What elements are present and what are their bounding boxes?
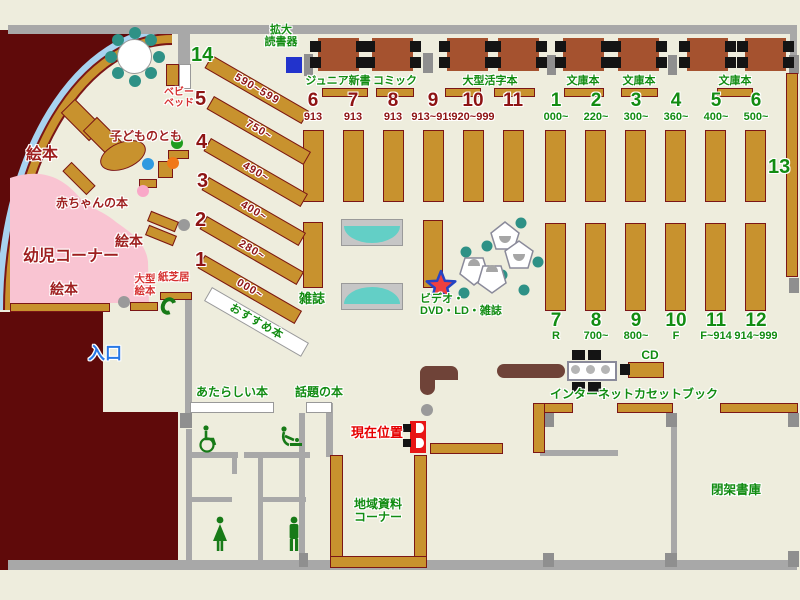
chair: [536, 57, 547, 68]
bookshelf: [166, 64, 179, 86]
chair: [783, 57, 794, 68]
library-floor-map: 590~599750~490~400~280~000~1454321おすすめ本6…: [0, 0, 800, 600]
bookshelf: [705, 130, 726, 202]
label-comic: コミック: [371, 75, 419, 87]
pillar: [789, 278, 799, 293]
bookshelf: [330, 556, 427, 568]
label-bunko-3: 文庫本: [715, 75, 755, 87]
label-zasshi: 雑誌: [299, 292, 325, 306]
bench-lower: [341, 283, 403, 310]
wall: [178, 33, 190, 65]
stack-number: 3: [197, 170, 208, 192]
wall: [540, 450, 618, 456]
chair: [783, 41, 794, 52]
reading-table: [687, 38, 728, 71]
label-entrance: 入口: [88, 345, 122, 364]
marker-square: [403, 424, 411, 432]
pillar: [118, 296, 130, 308]
pillar: [543, 553, 554, 567]
terminal-seat: [571, 365, 580, 374]
bookshelf: [303, 130, 324, 202]
bookshelf: [745, 223, 766, 311]
bookshelf: [585, 130, 606, 202]
counter-bar: [497, 364, 565, 378]
pillar: [545, 413, 554, 427]
bookshelf: [383, 130, 404, 202]
label-cassette: カセットブック: [634, 388, 718, 401]
bookshelf: [303, 222, 323, 288]
label-topic-books: 話題の本: [291, 386, 347, 399]
wall: [185, 296, 192, 414]
chair-dot: [105, 51, 117, 63]
terminal-seat: [586, 365, 595, 374]
pillar: [666, 413, 677, 427]
terminal-seat: [601, 365, 610, 374]
stack-range: 920~999: [439, 111, 507, 123]
pillar: [421, 404, 433, 416]
stool-blue: [142, 158, 154, 170]
chair: [555, 41, 566, 52]
chair: [364, 57, 375, 68]
chair: [620, 364, 630, 375]
chair: [588, 350, 601, 360]
label-ehon-low: 絵本: [50, 282, 78, 297]
chair: [439, 57, 450, 68]
bookshelf: [463, 130, 484, 202]
label-video: ビデオ・ DVD・LD・雑誌: [420, 293, 502, 317]
label-junior-shinsho: ジュニア新書: [302, 75, 374, 87]
label-bunko-2: 文庫本: [619, 75, 659, 87]
pillar: [668, 55, 677, 75]
bookshelf: [585, 223, 606, 311]
chair: [490, 57, 501, 68]
bookshelf: [705, 223, 726, 311]
chair: [656, 57, 667, 68]
chair: [364, 41, 375, 52]
bookshelf: [625, 130, 646, 202]
pillar: [665, 553, 677, 567]
marker-square: [403, 439, 411, 447]
pillar: [178, 219, 190, 231]
bookshelf: [628, 362, 664, 378]
wall: [186, 429, 192, 560]
chair: [679, 57, 690, 68]
magnifier-device: [286, 57, 302, 73]
label-heika: 閉架書庫: [711, 484, 761, 498]
label-stack-13: 13: [768, 156, 790, 178]
label-akachan: 赤ちゃんの本: [56, 197, 128, 210]
new-books-shelf: [190, 402, 274, 413]
bookshelf: [414, 455, 427, 568]
wheelchair-icon: [196, 424, 222, 454]
chair: [737, 41, 748, 52]
bookshelf: [545, 130, 566, 202]
wall: [671, 420, 677, 562]
chair: [555, 57, 566, 68]
label-internet: インターネット: [550, 388, 634, 401]
bench-upper: [341, 219, 403, 246]
bookshelf: [745, 130, 766, 202]
baby-bed: [179, 64, 191, 89]
stack-number: 6: [728, 91, 784, 112]
pillar: [788, 551, 799, 567]
chair: [725, 41, 736, 52]
pillar: [180, 413, 192, 428]
bookshelf: [665, 223, 686, 311]
stack-number: 1: [195, 249, 206, 271]
man-icon: [284, 516, 304, 554]
pillar: [788, 413, 799, 427]
bookshelf: [10, 303, 110, 312]
stool-orange: [167, 157, 179, 169]
label-bunko-1: 文庫本: [563, 75, 603, 87]
bookshelf: [533, 403, 545, 453]
chair-dot: [153, 51, 165, 63]
marker-seat: [416, 438, 424, 448]
chair-dot: [129, 27, 141, 39]
wall: [232, 452, 237, 474]
stack-range: 500~: [722, 111, 790, 123]
chair: [310, 41, 321, 52]
chair: [410, 57, 421, 68]
stack-number: 12: [728, 311, 784, 332]
label-ehon-mid: 絵本: [115, 234, 143, 249]
wall: [262, 497, 306, 502]
label-cd: CD: [634, 349, 666, 362]
reading-table: [318, 38, 359, 71]
bookshelf: [720, 403, 798, 413]
counter-l-leg: [420, 366, 435, 395]
stack-range: 914~999: [722, 330, 790, 342]
chair: [536, 41, 547, 52]
label-kodomo-no-tomo: 子どものとも: [110, 130, 182, 143]
stack-number: 14: [191, 44, 213, 66]
bookshelf: [423, 130, 444, 202]
woman-icon: [210, 516, 230, 554]
wall: [258, 452, 263, 562]
chair: [439, 41, 450, 52]
label-large-print: 大型活字本: [459, 75, 521, 87]
label-current-location: 現在位置: [351, 426, 403, 440]
bookshelf: [330, 455, 343, 568]
chair: [572, 350, 585, 360]
chair: [410, 41, 421, 52]
reading-table: [618, 38, 659, 71]
chair: [679, 41, 690, 52]
chair: [310, 57, 321, 68]
stack-number: 2: [195, 209, 206, 231]
bookshelf: [503, 130, 524, 202]
chair: [610, 41, 621, 52]
label-yoji-corner: 幼児コーナー: [23, 248, 119, 266]
label-chiiki: 地域資料 コーナー: [345, 498, 411, 524]
bookshelf: [430, 443, 503, 454]
reading-table: [498, 38, 539, 71]
label-baby-bed: ベビー ベッド: [158, 87, 200, 109]
label-new-books: あたらしい本: [192, 386, 272, 399]
bookshelf: [130, 302, 158, 311]
reading-table: [372, 38, 413, 71]
wall: [8, 25, 797, 34]
chair: [737, 57, 748, 68]
label-kamishibai: 紙芝居: [158, 272, 190, 284]
chair: [656, 41, 667, 52]
marker-seat: [416, 423, 424, 433]
pillar: [299, 553, 308, 567]
reading-table: [745, 38, 786, 71]
label-ehon-top: 絵本: [26, 146, 58, 164]
bookshelf: [665, 130, 686, 202]
chair: [725, 57, 736, 68]
label-magnifier: 拡大 読書器: [254, 24, 308, 48]
reading-table: [563, 38, 604, 71]
pillar: [423, 53, 433, 73]
bookshelf: [625, 223, 646, 311]
stack-number: 4: [196, 131, 207, 153]
topic-books-shelf: [306, 402, 332, 413]
chair: [610, 57, 621, 68]
stool-pink: [137, 185, 149, 197]
reading-table: [447, 38, 488, 71]
bookshelf: [343, 130, 364, 202]
chair-dot: [129, 75, 141, 87]
baby-changing-icon: [276, 424, 304, 454]
bookshelf: [617, 403, 673, 413]
chair: [490, 41, 501, 52]
wall: [192, 497, 232, 502]
round-table: [117, 39, 152, 74]
